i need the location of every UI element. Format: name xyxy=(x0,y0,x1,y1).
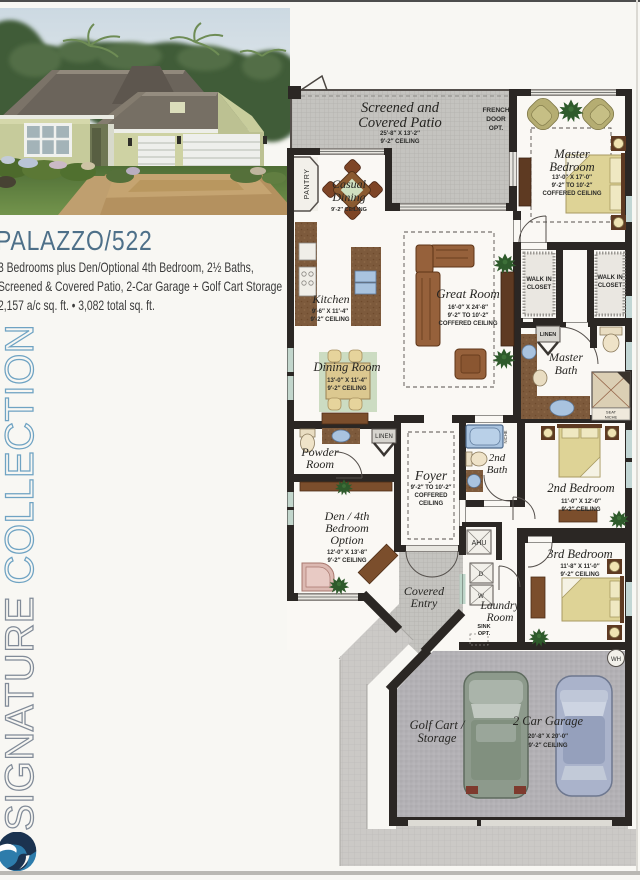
svg-text:9′-2″ CEILING: 9′-2″ CEILING xyxy=(328,386,367,392)
svg-text:NICHE: NICHE xyxy=(503,430,508,443)
svg-text:PANTRY: PANTRY xyxy=(304,169,311,200)
svg-text:11′-0″ X 12′-0″: 11′-0″ X 12′-0″ xyxy=(561,499,601,505)
svg-text:25′-8″ X 13′-2″: 25′-8″ X 13′-2″ xyxy=(380,131,420,137)
svg-text:Room: Room xyxy=(486,612,514,624)
svg-text:Entry: Entry xyxy=(410,596,438,610)
svg-text:20′-8″ X 20′-0″: 20′-8″ X 20′-0″ xyxy=(528,734,568,740)
svg-text:Laundry: Laundry xyxy=(480,600,521,612)
svg-text:Bath: Bath xyxy=(487,464,508,476)
svg-text:Covered Patio: Covered Patio xyxy=(358,115,442,131)
svg-text:13′-0″ X 17′-0″: 13′-0″ X 17′-0″ xyxy=(552,175,592,181)
svg-text:AHU: AHU xyxy=(472,540,487,547)
svg-text:OPT.: OPT. xyxy=(478,631,491,637)
svg-text:Bedroom: Bedroom xyxy=(549,160,594,174)
svg-text:Kitchen: Kitchen xyxy=(311,292,349,306)
svg-text:NICHE: NICHE xyxy=(605,415,618,420)
svg-text:9′-2″ TO 10′-2″: 9′-2″ TO 10′-2″ xyxy=(411,485,452,491)
svg-text:WALK IN: WALK IN xyxy=(526,277,551,283)
svg-text:9′-2″ TO 10′-2″: 9′-2″ TO 10′-2″ xyxy=(448,313,489,319)
svg-text:Master: Master xyxy=(553,147,590,161)
svg-text:CLOSET: CLOSET xyxy=(598,283,623,289)
svg-text:FRENCH: FRENCH xyxy=(482,107,509,114)
svg-text:WALK IN: WALK IN xyxy=(597,275,622,281)
svg-text:COFFERED CEILING: COFFERED CEILING xyxy=(542,191,601,197)
svg-text:Screened and: Screened and xyxy=(361,100,440,116)
svg-text:Golf Cart /: Golf Cart / xyxy=(410,718,466,732)
svg-text:SINK: SINK xyxy=(477,624,490,630)
svg-text:9′-2″ CEILING: 9′-2″ CEILING xyxy=(331,207,367,213)
svg-text:DOOR: DOOR xyxy=(486,116,506,123)
svg-text:OPT.: OPT. xyxy=(489,125,504,132)
svg-text:9′-2″ CEILING: 9′-2″ CEILING xyxy=(381,139,420,145)
svg-text:Storage: Storage xyxy=(418,731,457,745)
svg-text:WH: WH xyxy=(611,657,621,663)
svg-text:9′-2″ TO 10′-2″: 9′-2″ TO 10′-2″ xyxy=(552,183,593,189)
svg-text:LINEN: LINEN xyxy=(375,434,393,440)
svg-text:9′-6″ X 11′-4″: 9′-6″ X 11′-4″ xyxy=(312,309,348,315)
svg-text:Option: Option xyxy=(330,533,363,547)
svg-text:Bath: Bath xyxy=(555,363,578,377)
svg-text:9′-2″ CEILING: 9′-2″ CEILING xyxy=(561,572,600,578)
svg-text:Great Room: Great Room xyxy=(436,286,499,301)
svg-text:9′-2″ CEILING: 9′-2″ CEILING xyxy=(311,317,350,323)
svg-text:2nd Bedroom: 2nd Bedroom xyxy=(547,481,614,495)
svg-text:Dining: Dining xyxy=(331,190,365,204)
svg-text:9′-2″ CEILING: 9′-2″ CEILING xyxy=(562,507,601,513)
svg-text:COFFERED CEILING: COFFERED CEILING xyxy=(438,321,497,327)
svg-text:11′-8″ X 11′-0″: 11′-8″ X 11′-0″ xyxy=(560,564,599,570)
svg-text:Room: Room xyxy=(305,457,334,471)
svg-text:9′-2″ CEILING: 9′-2″ CEILING xyxy=(328,558,367,564)
svg-text:Dining Room: Dining Room xyxy=(312,360,380,374)
svg-text:9′-2″ CEILING: 9′-2″ CEILING xyxy=(529,743,568,749)
svg-text:LINEN: LINEN xyxy=(540,332,557,338)
svg-text:2nd: 2nd xyxy=(489,452,506,464)
svg-text:12′-0″ X 13′-8″: 12′-0″ X 13′-8″ xyxy=(327,550,367,556)
svg-text:3rd Bedroom: 3rd Bedroom xyxy=(546,547,612,561)
svg-text:CEILING: CEILING xyxy=(419,501,444,507)
svg-text:16′-0″ X 24′-8″: 16′-0″ X 24′-8″ xyxy=(448,305,488,311)
svg-text:D: D xyxy=(479,572,484,578)
svg-text:COFFERED: COFFERED xyxy=(415,493,449,499)
svg-text:Foyer: Foyer xyxy=(414,468,448,483)
svg-text:Master: Master xyxy=(548,350,583,364)
svg-text:CLOSET: CLOSET xyxy=(527,285,552,291)
svg-text:13′-0″ X 11′-4″: 13′-0″ X 11′-4″ xyxy=(327,378,367,384)
svg-text:2 Car Garage: 2 Car Garage xyxy=(513,714,584,728)
svg-text:Casual: Casual xyxy=(332,177,367,191)
